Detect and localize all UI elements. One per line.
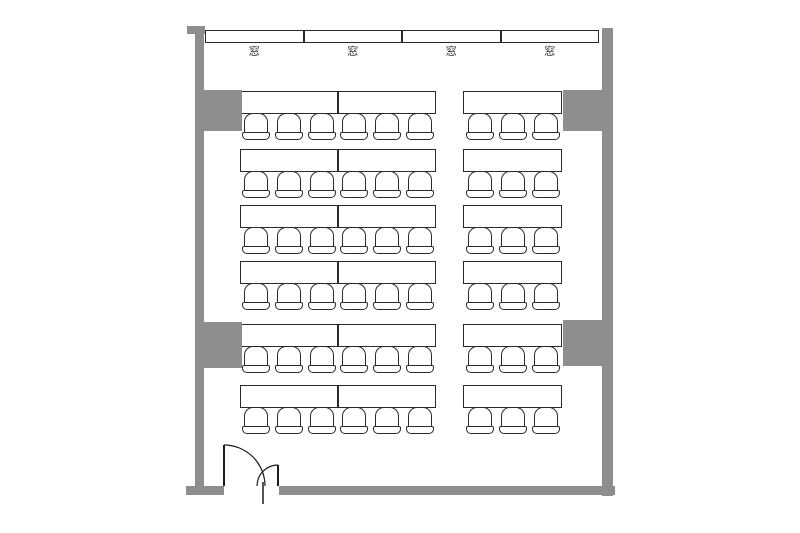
desk-block [463, 91, 562, 114]
chair-seat [244, 407, 268, 428]
chair-back [466, 246, 494, 254]
desk-block [463, 205, 562, 228]
chair [308, 171, 336, 199]
chair [308, 346, 336, 374]
chair-back [340, 132, 368, 140]
chair-seat [244, 113, 268, 134]
chair [340, 113, 368, 141]
chair [242, 113, 270, 141]
window-label: 窓 [205, 45, 304, 59]
chair-seat [375, 346, 399, 367]
chair-back [308, 132, 336, 140]
chair-seat [342, 346, 366, 367]
chair-back [532, 132, 560, 140]
window [304, 30, 403, 43]
chair-seat [342, 113, 366, 134]
wall-bottom-right [279, 486, 615, 495]
chair-seat [501, 227, 525, 248]
chair [532, 346, 560, 374]
chair [275, 227, 303, 255]
chair-seat [342, 171, 366, 192]
chair-back [308, 426, 336, 434]
chair-seat [468, 113, 492, 134]
chair-back [275, 190, 303, 198]
chair-seat [375, 227, 399, 248]
chair-back [466, 132, 494, 140]
chair [466, 113, 494, 141]
chair-back [373, 246, 401, 254]
chair-seat [468, 227, 492, 248]
chair-seat [244, 346, 268, 367]
chair-seat [310, 113, 334, 134]
chair-back [242, 426, 270, 434]
window [205, 30, 304, 43]
chair [466, 227, 494, 255]
chair-back [308, 190, 336, 198]
desk-block [240, 324, 436, 347]
chair [532, 407, 560, 435]
chair [466, 407, 494, 435]
chair-seat [408, 283, 432, 304]
chair-seat [342, 283, 366, 304]
chair-back [406, 246, 434, 254]
chair [373, 171, 401, 199]
chair-back [406, 365, 434, 373]
window-label: 窓 [501, 45, 600, 59]
chair-seat [310, 283, 334, 304]
chair [340, 171, 368, 199]
chair [499, 227, 527, 255]
wall-top-left-cap [187, 26, 205, 34]
chair [499, 283, 527, 311]
chair-seat [501, 407, 525, 428]
entrance-door-icon [208, 438, 290, 510]
chair-seat [408, 346, 432, 367]
chair-seat [310, 171, 334, 192]
desk-block [463, 324, 562, 347]
chair-back [499, 246, 527, 254]
chair [532, 113, 560, 141]
chair-seat [277, 346, 301, 367]
chair-seat [375, 113, 399, 134]
chair-back [340, 302, 368, 310]
chair-back [532, 190, 560, 198]
chair [532, 227, 560, 255]
chair-back [340, 426, 368, 434]
chair [406, 407, 434, 435]
window-label: 窓 [304, 45, 403, 59]
chair [340, 407, 368, 435]
chair [340, 227, 368, 255]
chair-back [532, 302, 560, 310]
chair-back [499, 132, 527, 140]
chair [275, 346, 303, 374]
chair [499, 407, 527, 435]
chair-back [275, 132, 303, 140]
chair [242, 227, 270, 255]
chair-seat [277, 407, 301, 428]
desk-divider [337, 261, 339, 284]
chair [406, 227, 434, 255]
chair-back [275, 426, 303, 434]
chair-seat [501, 346, 525, 367]
chair [466, 171, 494, 199]
chair-seat [408, 227, 432, 248]
chair [340, 283, 368, 311]
chair-seat [310, 346, 334, 367]
chair-back [242, 132, 270, 140]
chair-back [373, 426, 401, 434]
wall-pillar [563, 320, 602, 366]
chair [499, 171, 527, 199]
chair-seat [501, 283, 525, 304]
chair-back [373, 365, 401, 373]
chair-back [499, 190, 527, 198]
window [501, 30, 600, 43]
chair-seat [501, 171, 525, 192]
chair [242, 346, 270, 374]
chair-back [499, 302, 527, 310]
chair-back [242, 302, 270, 310]
chair [532, 283, 560, 311]
chair-back [532, 246, 560, 254]
chair-back [466, 365, 494, 373]
chair-back [466, 302, 494, 310]
door-left-swing-arc [224, 445, 265, 486]
chair-back [532, 426, 560, 434]
wall-pillar [563, 90, 602, 131]
chair-back [308, 365, 336, 373]
chair [532, 171, 560, 199]
chair-seat [277, 113, 301, 134]
chair-seat [342, 227, 366, 248]
chair-back [373, 190, 401, 198]
chair-back [466, 190, 494, 198]
chair-seat [375, 171, 399, 192]
chair-back [466, 426, 494, 434]
chair-seat [534, 346, 558, 367]
chair [499, 113, 527, 141]
chair [373, 227, 401, 255]
chair [275, 171, 303, 199]
chair-seat [534, 407, 558, 428]
desk-divider [337, 385, 339, 408]
chair [242, 171, 270, 199]
chair-back [532, 365, 560, 373]
chair [406, 283, 434, 311]
chair-back [242, 190, 270, 198]
desk-block [240, 91, 436, 114]
chair [466, 346, 494, 374]
chair-seat [244, 283, 268, 304]
chair [406, 113, 434, 141]
chair-back [275, 302, 303, 310]
chair-seat [408, 113, 432, 134]
desk-divider [337, 91, 339, 114]
chair-seat [534, 227, 558, 248]
chair [373, 407, 401, 435]
chair [373, 113, 401, 141]
chair-back [406, 190, 434, 198]
chair [308, 113, 336, 141]
window-label-row: 窓窓窓窓 [205, 45, 599, 59]
chair [340, 346, 368, 374]
chair-back [406, 302, 434, 310]
floor-plan-canvas: 窓窓窓窓 [0, 0, 800, 533]
chair-seat [277, 227, 301, 248]
wall-left [195, 28, 204, 493]
desk-block [463, 149, 562, 172]
desk-block [240, 205, 436, 228]
desk-block [240, 149, 436, 172]
chair [308, 407, 336, 435]
chair-back [340, 190, 368, 198]
chair [308, 283, 336, 311]
chair [275, 283, 303, 311]
wall-pillar [204, 322, 242, 368]
chair-back [340, 246, 368, 254]
chair-seat [310, 407, 334, 428]
window [402, 30, 501, 43]
chair [242, 283, 270, 311]
chair-seat [310, 227, 334, 248]
desk-divider [337, 149, 339, 172]
chair-seat [277, 171, 301, 192]
chair-back [406, 426, 434, 434]
chair-seat [375, 283, 399, 304]
chair-seat [468, 171, 492, 192]
chair-seat [468, 407, 492, 428]
desk-block [240, 385, 436, 408]
desk-divider [337, 324, 339, 347]
chair-seat [408, 407, 432, 428]
chair-seat [501, 113, 525, 134]
chair [406, 346, 434, 374]
desk-block [463, 261, 562, 284]
desk-divider [337, 205, 339, 228]
chair-back [275, 365, 303, 373]
chair-seat [534, 113, 558, 134]
chair-back [308, 302, 336, 310]
desk-block [240, 261, 436, 284]
chair-seat [244, 227, 268, 248]
chair [275, 113, 303, 141]
chair-seat [468, 283, 492, 304]
chair-back [499, 426, 527, 434]
chair-seat [534, 283, 558, 304]
chair-seat [534, 171, 558, 192]
chair [406, 171, 434, 199]
chair-back [242, 365, 270, 373]
chair-back [340, 365, 368, 373]
window-label: 窓 [402, 45, 501, 59]
desk-block [463, 385, 562, 408]
chair-seat [408, 171, 432, 192]
chair [373, 283, 401, 311]
window-band [205, 30, 599, 43]
chair-back [406, 132, 434, 140]
wall-right [602, 28, 613, 496]
chair-back [499, 365, 527, 373]
chair-seat [468, 346, 492, 367]
chair-back [275, 246, 303, 254]
chair [499, 346, 527, 374]
door-right-swing-arc [257, 465, 278, 486]
chair [275, 407, 303, 435]
chair [466, 283, 494, 311]
chair [373, 346, 401, 374]
chair-back [373, 132, 401, 140]
wall-pillar [204, 90, 242, 131]
chair-back [308, 246, 336, 254]
chair-seat [244, 171, 268, 192]
chair-seat [342, 407, 366, 428]
chair [308, 227, 336, 255]
chair-back [242, 246, 270, 254]
chair-seat [277, 283, 301, 304]
chair-seat [375, 407, 399, 428]
chair-back [373, 302, 401, 310]
chair [242, 407, 270, 435]
